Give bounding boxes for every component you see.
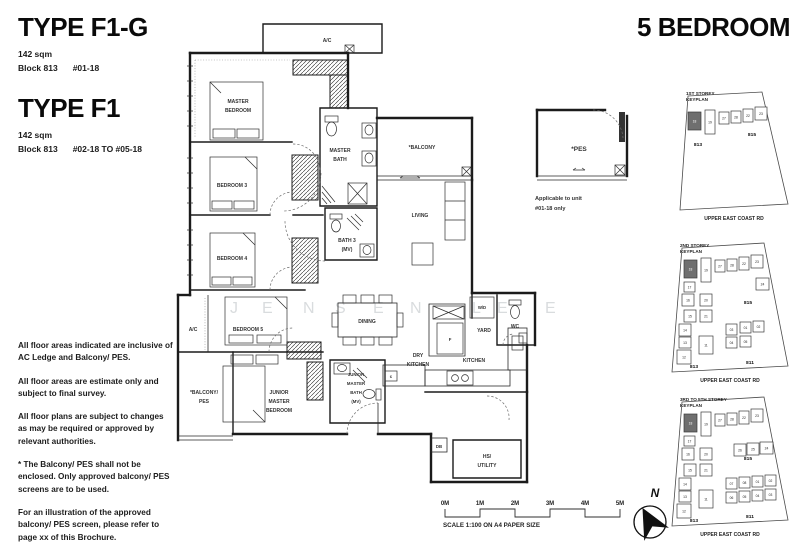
keyplan-unit-number: 20 bbox=[704, 298, 708, 302]
keyplan-unit-number: 28 bbox=[730, 263, 734, 267]
keyplan1-title-1: 1ST STOREY bbox=[686, 91, 715, 96]
label-junior-bedroom-2: MASTER bbox=[268, 399, 290, 405]
type-f1g-area: 142 sqm bbox=[18, 49, 188, 59]
keyplan1-road: UPPER EAST COAST RD bbox=[704, 216, 764, 222]
keyplan-block-label: 813 bbox=[694, 142, 702, 148]
keyplan-unit-number: 26 bbox=[738, 448, 742, 452]
keyplan-unit-number: 07 bbox=[730, 482, 734, 486]
note-1: All floor areas indicated are inclusive … bbox=[18, 340, 174, 365]
type-f1-block-row: Block 813 #02-18 TO #05-18 bbox=[18, 144, 188, 154]
label-hs-1: HS/ bbox=[483, 454, 492, 460]
keyplan-unit-number: 21 bbox=[704, 314, 708, 318]
keyplan-unit-number: 22 bbox=[746, 114, 750, 118]
note-4: * The Balcony/ PES shall not be enclosed… bbox=[18, 459, 174, 496]
keyplan-unit-number: 04 bbox=[730, 341, 734, 345]
note-2: All floor areas are estimate only and su… bbox=[18, 376, 174, 401]
keyplan-unit-number: 04 bbox=[756, 494, 760, 498]
scale-tick-3: 3M bbox=[546, 501, 554, 507]
keyplan-unit-number: 19 bbox=[704, 268, 708, 272]
furniture bbox=[210, 82, 527, 422]
keyplan-unit-number: 06 bbox=[730, 496, 734, 500]
label-balcony: *BALCONY bbox=[409, 145, 436, 151]
keyplan-unit-number: 22 bbox=[742, 416, 746, 420]
pes-note-1: Applicable to unit bbox=[535, 196, 582, 202]
label-kitchen: KITCHEN bbox=[463, 358, 486, 364]
keyplan-unit-number: 16 bbox=[686, 298, 690, 302]
pes-note-2: #01-18 only bbox=[535, 206, 566, 212]
keyplan-3rd-5th-storey: 1819272822232625241716201521141312110708… bbox=[664, 394, 796, 546]
keyplan-unit-number: 05 bbox=[744, 340, 748, 344]
keyplan-unit-number: 23 bbox=[755, 414, 759, 418]
label-dry-kitchen-2: KITCHEN bbox=[407, 362, 430, 368]
keyplan-unit-number: 24 bbox=[765, 446, 769, 450]
keyplan-2nd-storey: 1819272822232417162015211413121103010204… bbox=[664, 240, 796, 392]
keyplan-unit-number: 17 bbox=[688, 439, 692, 443]
keyplan-block-label: 815 bbox=[744, 456, 752, 462]
north-label: N bbox=[651, 486, 660, 500]
keyplan-unit-number: 05 bbox=[743, 495, 747, 499]
keyplan-block-label: 813 bbox=[690, 518, 698, 524]
type-header: TYPE F1-G 142 sqm Block 813 #01-18 TYPE … bbox=[18, 12, 188, 154]
label-dry-kitchen-1: DRY bbox=[413, 353, 424, 359]
keyplan-unit-number: 18 bbox=[689, 267, 693, 271]
scale-caption: SCALE 1:100 ON A4 PAPER SIZE bbox=[443, 522, 540, 529]
keyplan-unit-number: 27 bbox=[722, 116, 726, 120]
keyplan-unit-number: 13 bbox=[683, 341, 687, 345]
keyplan-unit-number: 11 bbox=[704, 497, 708, 501]
disclaimer-notes: All floor areas indicated are inclusive … bbox=[18, 340, 174, 551]
label-fridge: F bbox=[449, 337, 452, 342]
label-wc: WC bbox=[511, 324, 520, 330]
label-master-bath-2: BATH bbox=[333, 157, 347, 163]
keyplan-unit-number: 02 bbox=[757, 325, 761, 329]
keyplan-unit-number: 14 bbox=[683, 482, 687, 486]
label-junior-bath-1: JUNIOR bbox=[348, 372, 365, 377]
label-bedroom4: BEDROOM 4 bbox=[217, 256, 248, 262]
keyplan-unit-number: 28 bbox=[734, 115, 738, 119]
type-f1-area: 142 sqm bbox=[18, 130, 188, 140]
floorplan-page: JENSENLEE TYPE F1-G 142 sqm Block 813 #0… bbox=[0, 0, 800, 551]
label-yard: YARD bbox=[477, 328, 491, 334]
keyplan-block-label: 811 bbox=[746, 360, 754, 366]
keyplan-unit-number: 27 bbox=[718, 264, 722, 268]
keyplan-unit-number: 01 bbox=[744, 326, 748, 330]
floorplan-drawing: A/C MASTER BEDROOM MASTER BATH *BALCONY … bbox=[175, 8, 635, 520]
outer-walls bbox=[178, 24, 535, 482]
keyplan-block-label: 811 bbox=[746, 514, 754, 520]
keyplan-unit-number: 16 bbox=[686, 452, 690, 456]
keyplan-unit-number: 01 bbox=[756, 480, 760, 484]
label-living: LIVING bbox=[412, 213, 429, 219]
label-junior-bath-3: BATH bbox=[350, 390, 362, 395]
keyplan-unit-number: 22 bbox=[742, 262, 746, 266]
keyplan-unit-number: 14 bbox=[683, 328, 687, 332]
bedroom-count-title: 5 BEDROOM bbox=[637, 12, 790, 43]
label-master-bedroom-2: BEDROOM bbox=[225, 108, 251, 114]
north-compass-icon: N bbox=[622, 484, 678, 546]
keyplan-unit-number: 21 bbox=[704, 468, 708, 472]
keyplan-unit-number: 03 bbox=[769, 493, 773, 497]
label-cooker: c bbox=[390, 374, 393, 379]
keyplan1-title-2: KEYPLAN bbox=[686, 97, 709, 102]
label-junior-bath-2: MASTER bbox=[347, 381, 366, 386]
keyplan-unit-number: 23 bbox=[759, 112, 763, 116]
keyplan-unit-number: 18 bbox=[693, 119, 697, 123]
scale-tick-0: 0M bbox=[441, 501, 449, 507]
label-db: DB bbox=[436, 444, 442, 449]
keyplan-unit-number: 25 bbox=[751, 447, 755, 451]
keyplan-block-label: 813 bbox=[690, 364, 698, 370]
keyplan-unit-number: 19 bbox=[708, 120, 712, 124]
keyplan-unit-number: 12 bbox=[682, 355, 686, 359]
scale-bar: 0M 1M 2M 3M 4M 5M SCALE 1:100 ON A4 PAPE… bbox=[428, 496, 633, 536]
type-f1-block: Block 813 bbox=[18, 144, 58, 154]
keyplan-1st-storey: 181927282223813815 1ST STOREY KEYPLAN UP… bbox=[668, 88, 800, 228]
label-bath3-2: (MV) bbox=[342, 247, 353, 253]
keyplan-block-label: 815 bbox=[744, 300, 752, 306]
type-f1g-units: #01-18 bbox=[73, 63, 99, 73]
keyplan-unit-number: 03 bbox=[730, 328, 734, 332]
bath-fixtures bbox=[322, 116, 527, 400]
keyplan-unit-number: 24 bbox=[761, 282, 765, 286]
label-junior-bath-4: (MV) bbox=[351, 399, 361, 404]
type-f1-units: #02-18 TO #05-18 bbox=[73, 144, 142, 154]
keyplan-unit-number: 11 bbox=[704, 343, 708, 347]
label-ac-left: A/C bbox=[189, 327, 198, 333]
keyplan-unit-number: 08 bbox=[743, 481, 747, 485]
keyplan-unit-number: 28 bbox=[730, 417, 734, 421]
keyplan-unit-number: 19 bbox=[704, 422, 708, 426]
label-bedroom5: BEDROOM 5 bbox=[233, 327, 264, 333]
label-hs-2: UTILITY bbox=[478, 463, 498, 469]
label-bath3-1: BATH 3 bbox=[338, 238, 356, 244]
keyplan-unit-number: 15 bbox=[688, 468, 692, 472]
scale-tick-1: 1M bbox=[476, 501, 484, 507]
keyplan2-title-2: KEYPLAN bbox=[680, 249, 703, 254]
label-master-bath-1: MASTER bbox=[329, 148, 351, 154]
scale-tick-2: 2M bbox=[511, 501, 519, 507]
type-f1g-block: Block 813 bbox=[18, 63, 58, 73]
label-ac-top: A/C bbox=[323, 38, 332, 44]
keyplan-unit-number: 17 bbox=[688, 285, 692, 289]
note-5: For an illustration of the approved balc… bbox=[18, 507, 174, 544]
pes-annex bbox=[537, 110, 627, 180]
label-pes: *PES bbox=[571, 146, 587, 153]
label-dining: DINING bbox=[358, 319, 376, 325]
keyplan-unit-number: 15 bbox=[688, 314, 692, 318]
keyplan-unit-number: 18 bbox=[689, 421, 693, 425]
type-f1-title: TYPE F1 bbox=[18, 93, 188, 124]
keyplan3-title-1: 3RD TO 5TH STOREY bbox=[680, 397, 727, 402]
type-f1g-title: TYPE F1-G bbox=[18, 12, 188, 43]
scale-tick-4: 4M bbox=[581, 501, 589, 507]
keyplan-unit-number: 27 bbox=[718, 418, 722, 422]
note-3: All floor plans are subject to changes a… bbox=[18, 411, 174, 448]
keyplan3-title-2: KEYPLAN bbox=[680, 403, 703, 408]
type-f1g-block-row: Block 813 #01-18 bbox=[18, 63, 188, 73]
label-master-bedroom-1: MASTER bbox=[227, 99, 249, 105]
keyplan-unit-number: 13 bbox=[683, 495, 687, 499]
keyplan2-road: UPPER EAST COAST RD bbox=[700, 378, 760, 384]
label-junior-bedroom-1: JUNIOR bbox=[270, 390, 289, 396]
label-balcony-pes-1: *BALCONY/ bbox=[190, 390, 219, 396]
keyplan-block-label: 815 bbox=[748, 132, 756, 138]
label-wd: W/D bbox=[478, 305, 486, 310]
label-bedroom3: BEDROOM 3 bbox=[217, 183, 248, 189]
keyplan-unit-number: 23 bbox=[755, 260, 759, 264]
label-junior-bedroom-3: BEDROOM bbox=[266, 408, 292, 414]
keyplan-unit-number: 02 bbox=[769, 479, 773, 483]
wardrobes bbox=[287, 60, 348, 400]
keyplan3-road: UPPER EAST COAST RD bbox=[700, 532, 760, 538]
keyplan2-title-1: 2ND STOREY bbox=[680, 243, 709, 248]
label-balcony-pes-2: PES bbox=[199, 399, 210, 405]
keyplan-unit-number: 20 bbox=[704, 452, 708, 456]
keyplan-unit-number: 12 bbox=[682, 509, 686, 513]
